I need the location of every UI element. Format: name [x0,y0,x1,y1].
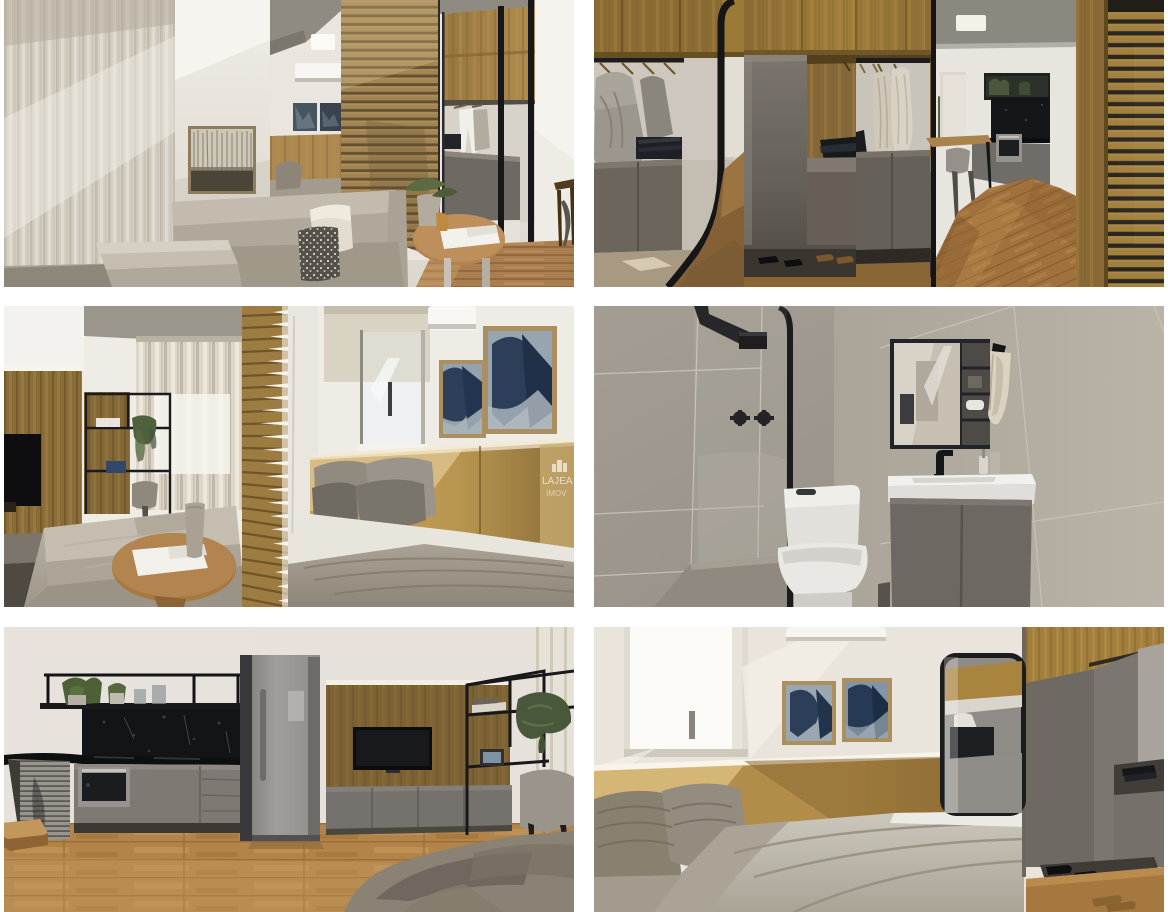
svg-text:IMOV: IMOV [546,489,567,498]
svg-text:LAJEA: LAJEA [542,476,573,487]
